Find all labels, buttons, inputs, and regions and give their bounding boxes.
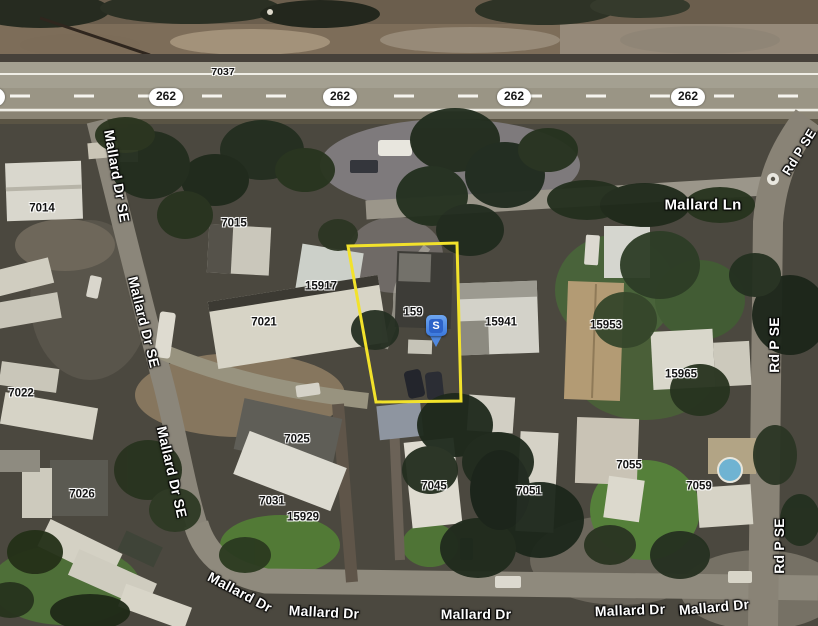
swimming-pool: [718, 458, 742, 482]
address-label: 15953: [590, 320, 622, 332]
address-label: 15941: [485, 317, 517, 329]
address-label: 7051: [516, 486, 542, 498]
address-label: 15965: [665, 369, 697, 381]
route-shield: 262: [497, 88, 531, 106]
route-shield: 262: [323, 88, 357, 106]
street-label: Mallard Ln: [664, 198, 741, 213]
address-label: 7055: [616, 460, 642, 472]
street-label: Mallard Dr: [441, 607, 511, 621]
street-label: Mallard Dr: [595, 602, 666, 618]
street-label: Rd P SE: [767, 317, 781, 373]
street-label: Rd P SE: [772, 518, 786, 574]
address-label: 7021: [251, 317, 277, 329]
address-label: 7031: [259, 496, 285, 508]
address-label: 7045: [421, 481, 447, 493]
property-marker-pin[interactable]: S: [425, 315, 447, 347]
route-shield: 262: [671, 88, 705, 106]
address-label: 7026: [69, 489, 95, 501]
marker-head: S: [426, 315, 447, 336]
address-label: 7025: [284, 434, 310, 446]
address-label: 159: [403, 307, 422, 319]
address-label: 7059: [686, 481, 712, 493]
address-label: 7015: [221, 218, 247, 230]
route-shield: 262: [149, 88, 183, 106]
address-label: 7037: [211, 67, 234, 78]
address-label: 7022: [8, 388, 34, 400]
street-label: Mallard Dr: [288, 603, 359, 621]
address-label: 7014: [29, 203, 55, 215]
address-label: 15917: [305, 281, 337, 293]
marker-letter: S: [429, 319, 443, 333]
satellite-map[interactable]: 262262262262262Mallard Dr SEMallard Dr S…: [0, 0, 818, 626]
driveway-2: [394, 424, 400, 560]
address-label: 15929: [287, 512, 319, 524]
